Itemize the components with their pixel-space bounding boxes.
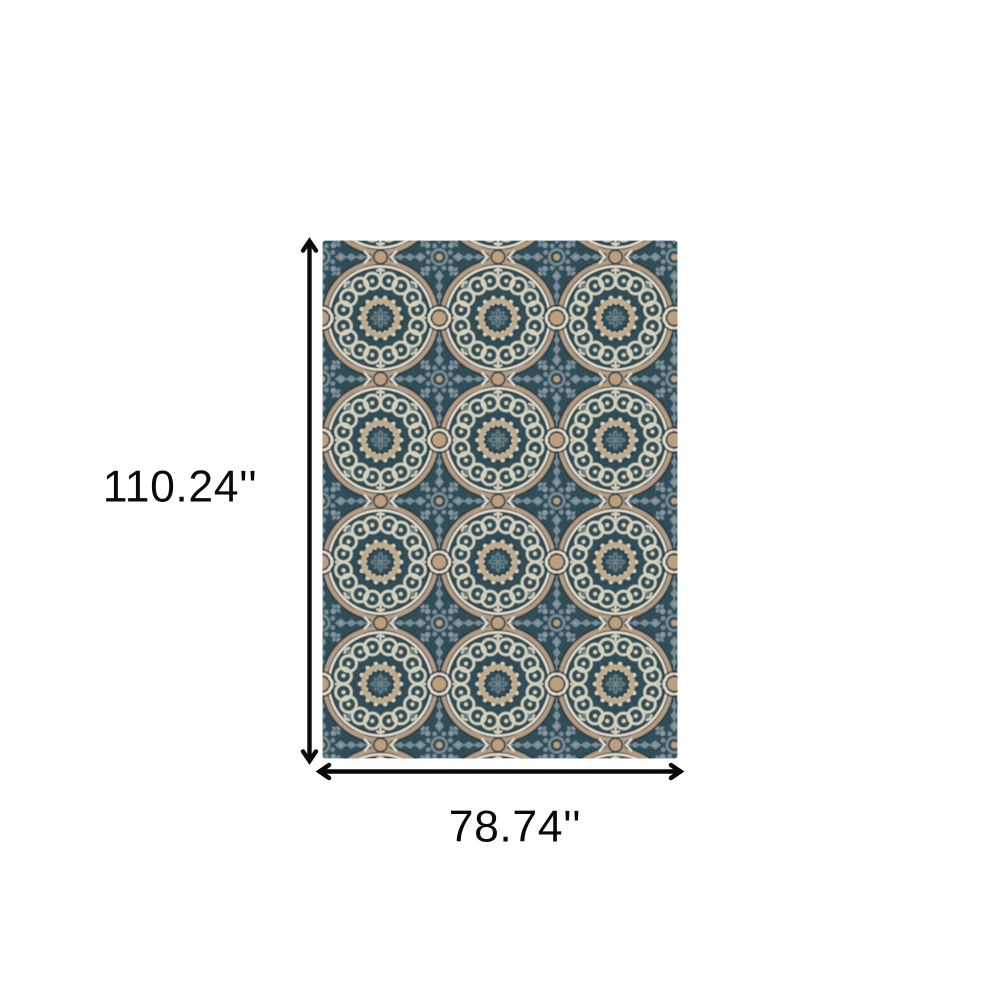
svg-text:78.74'': 78.74'' [449, 803, 582, 852]
svg-text:110.24'': 110.24'' [103, 463, 258, 512]
